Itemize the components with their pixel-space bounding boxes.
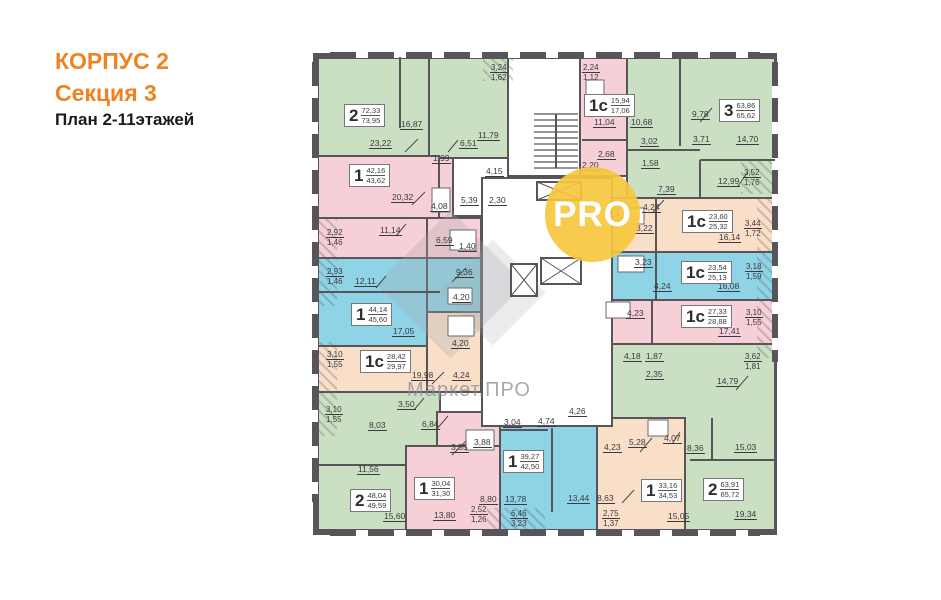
unit-area-label: 363,8665,62 xyxy=(719,99,760,122)
balcony-dimension-label: 2,241,12 xyxy=(582,63,600,82)
room-dimension-label: 13,44 xyxy=(567,493,590,504)
room-dimension-label: 11,14 xyxy=(379,225,402,236)
room-dimension-label: 4,23 xyxy=(603,442,622,453)
room-dimension-label: 13,78 xyxy=(504,494,527,505)
balcony-dimension-label: 2,521,26 xyxy=(470,505,488,524)
room-dimension-label: 10,68 xyxy=(630,117,653,128)
room-dimension-label: 6,51 xyxy=(459,138,478,149)
room-dimension-label: 19,34 xyxy=(734,509,757,520)
room-dimension-label: 15,05 xyxy=(667,511,690,522)
floorplan-page: КОРПУС 2 Секция 3 План 2-11этажей xyxy=(0,0,941,600)
room-dimension-label: 7,39 xyxy=(657,184,676,195)
room-dimension-label: 8,03 xyxy=(368,420,387,431)
room-dimension-label: 16,87 xyxy=(400,119,423,130)
room-dimension-label: 15,60 xyxy=(383,511,406,522)
room-dimension-label: 3,02 xyxy=(640,136,659,147)
room-dimension-label: 12,99 xyxy=(717,176,740,187)
balcony-dimension-label: 3,521,76 xyxy=(743,168,761,187)
room-dimension-label: 4,08 xyxy=(430,201,449,212)
room-dimension-label: 8,80 xyxy=(479,494,498,505)
balcony-dimension-label: 3,241,62 xyxy=(490,63,508,82)
unit-area-label: 144,1445,60 xyxy=(351,303,392,326)
unit-area-label: 1с27,3328,88 xyxy=(681,305,732,328)
room-dimension-label: 6,59 xyxy=(435,235,454,246)
pro-badge-watermark: PRO xyxy=(545,167,640,262)
balcony-dimension-label: 3,441,72 xyxy=(744,219,762,238)
brand-text-watermark: Маркет.ПРО xyxy=(407,379,531,402)
balcony-dimension-label: 3,181,59 xyxy=(745,262,763,281)
unit-area-label: 263,9165,72 xyxy=(703,478,744,501)
balcony-dimension-label: 3,621,81 xyxy=(744,352,762,371)
room-dimension-label: 14,79 xyxy=(716,376,739,387)
unit-area-label: 130,0431,30 xyxy=(414,477,455,500)
room-dimension-label: 9,78 xyxy=(691,109,710,120)
unit-area-label: 272,3373,95 xyxy=(344,104,385,127)
room-dimension-label: 6,84 xyxy=(421,419,440,430)
room-dimension-label: 4,23 xyxy=(626,308,645,319)
room-dimension-label: 4,24 xyxy=(642,202,661,213)
unit-area-label: 142,1643,62 xyxy=(349,164,390,187)
unit-area-label: 1с23,6025,32 xyxy=(682,210,733,233)
room-dimension-label: 20,32 xyxy=(391,192,414,203)
room-dimension-label: 3,04 xyxy=(503,417,522,428)
room-dimension-label: 4,20 xyxy=(451,338,470,349)
room-dimension-label: 11,56 xyxy=(357,464,380,475)
balcony-dimension-label: 2,921,46 xyxy=(326,228,344,247)
unit-area-label: 248,0449,59 xyxy=(350,489,391,512)
room-dimension-label: 8,36 xyxy=(686,443,705,454)
room-dimension-label: 1,99 xyxy=(432,153,451,164)
room-dimension-label: 15,03 xyxy=(734,442,757,453)
unit-area-label: 1с28,4229,97 xyxy=(360,350,411,373)
unit-area-label: 139,2742,50 xyxy=(503,450,544,473)
room-dimension-label: 4,26 xyxy=(568,406,587,417)
room-dimension-label: 14,70 xyxy=(736,134,759,145)
room-dimension-label: 3,23 xyxy=(634,257,653,268)
balcony-dimension-label: 2,751,37 xyxy=(602,509,620,528)
balcony-dimension-label: 2,931,46 xyxy=(326,267,344,286)
balcony-dimension-label: 3,101,55 xyxy=(745,308,763,327)
pro-badge-text: PRO xyxy=(553,195,632,235)
room-dimension-label: 3,55 xyxy=(450,442,469,453)
room-dimension-label: 13,80 xyxy=(433,510,456,521)
room-dimension-label: 5,28 xyxy=(628,437,647,448)
room-dimension-label: 1,58 xyxy=(641,158,660,169)
room-dimension-label: 16,14 xyxy=(718,232,741,243)
balcony-dimension-label: 3,101,55 xyxy=(325,405,343,424)
stair-treads xyxy=(534,114,578,168)
room-dimension-label: 4,18 xyxy=(623,351,642,362)
room-dimension-label: 4,24 xyxy=(653,281,672,292)
room-dimension-label: 8,63 xyxy=(596,493,615,504)
balcony-dimension-label: 3,101,55 xyxy=(326,350,344,369)
room-dimension-label: 17,05 xyxy=(392,326,415,337)
room-dimension-label: 12,11 xyxy=(354,276,377,287)
room-dimension-label: 2,68 xyxy=(597,149,616,160)
room-dimension-label: 2,35 xyxy=(645,369,664,380)
room-dimension-label: 3,71 xyxy=(692,134,711,145)
room-dimension-label: 11,04 xyxy=(593,117,616,128)
room-dimension-label: 1,87 xyxy=(645,351,664,362)
unit-area-label: 1с15,9417,06 xyxy=(584,94,635,117)
unit-area-label: 1с23,5425,13 xyxy=(681,261,732,284)
room-dimension-label: 4,07 xyxy=(663,433,682,444)
unit-area-label: 133,1634,53 xyxy=(641,479,682,502)
room-dimension-label: 4,20 xyxy=(452,292,471,303)
room-dimension-label: 9,36 xyxy=(455,267,474,278)
balcony-dimension-label: 6,463,23 xyxy=(510,509,528,528)
room-dimension-label: 2,30 xyxy=(488,195,507,206)
room-dimension-label: 4,15 xyxy=(485,166,504,177)
room-dimension-label: 1,40 xyxy=(458,241,477,252)
room-dimension-label: 11,79 xyxy=(477,130,500,141)
room-dimension-label: 4,74 xyxy=(537,416,556,427)
room-dimension-label: 23,22 xyxy=(369,138,392,149)
room-dimension-label: 5,39 xyxy=(460,195,479,206)
room-dimension-label: 3,88 xyxy=(473,437,492,448)
